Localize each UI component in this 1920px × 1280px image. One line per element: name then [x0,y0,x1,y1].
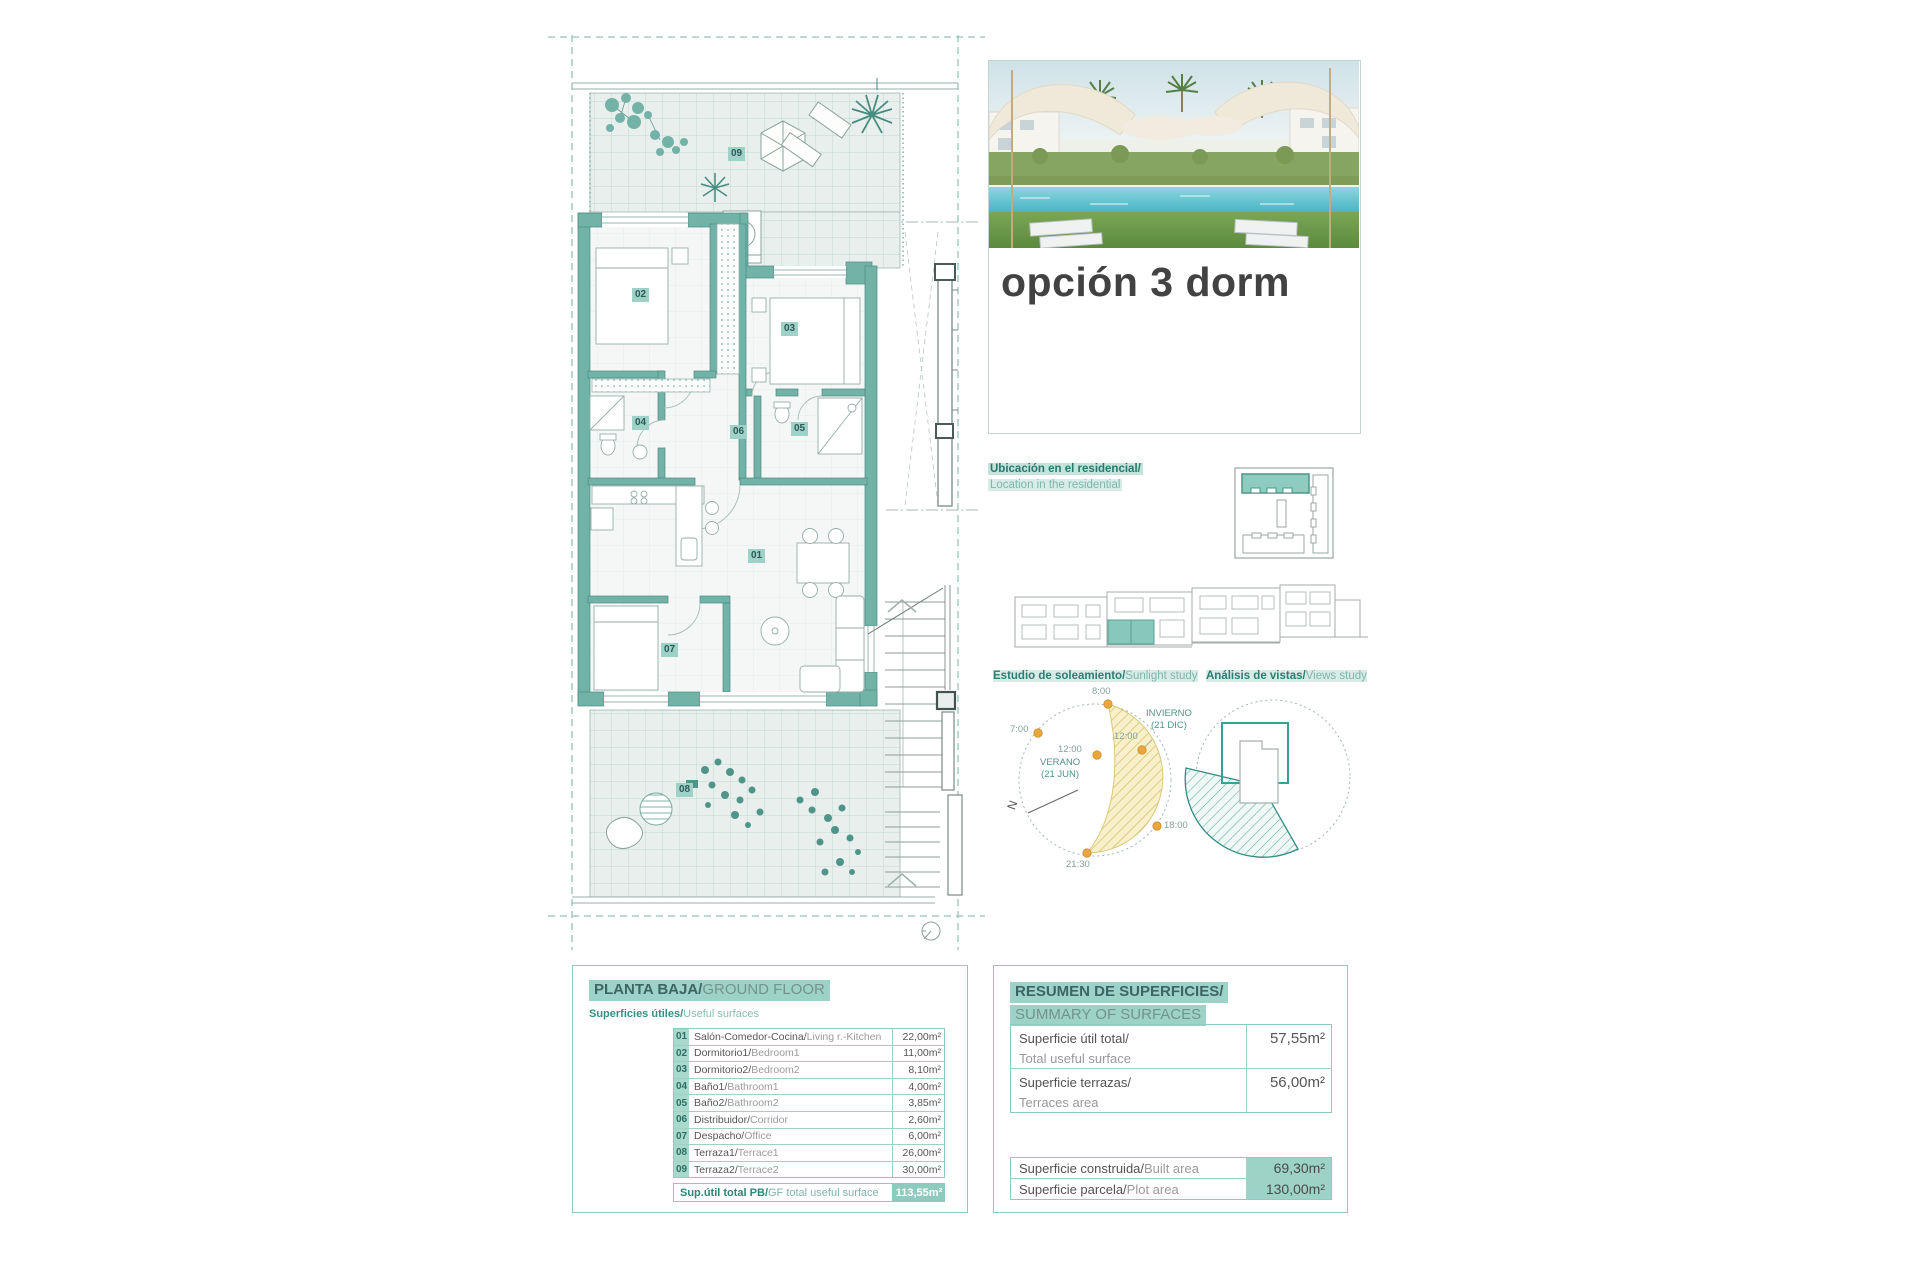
room-chip-04: 04 [632,416,649,430]
page-title: opción 3 dorm [1001,259,1290,306]
room-chip-09: 09 [728,147,745,161]
floor-plan-drawing [548,35,985,950]
row-name-en: Bathroom2 [727,1097,778,1109]
room-chip-06: 06 [730,425,747,439]
stair-wall-bottom [948,795,962,895]
row-name-es: Dormitorio1/ [694,1047,751,1059]
summary-title-en: SUMMARY OF SURFACES [1010,1005,1206,1026]
row-name-es: Despacho/ [694,1130,744,1142]
row-name-en: Living r.-Kitchen [807,1031,882,1043]
table-row: 08 Terraza1/Terrace1 26,00m² [674,1145,944,1162]
row-name-en: Bathroom1 [727,1081,778,1093]
top-wall-lines [572,83,958,89]
row-name: Terraza1/Terrace1 [689,1145,892,1161]
row-area: 11,00m² [892,1046,944,1062]
ground-floor-header: PLANTA BAJA/GROUND FLOOR [589,980,830,1001]
total-row: Sup.útil total PB/GF total useful surfac… [673,1183,945,1202]
views-building-outline [1240,741,1278,803]
sun-time-2130: 21:30 [1066,859,1090,870]
summary-row-label: Superficie parcela/Plot area [1011,1182,1246,1197]
table-row: 05 Baño2/Bathroom2 3,85m² [674,1095,944,1112]
summary-label-en: Plot area [1127,1182,1179,1197]
summary-label-es: Superficie parcela/ [1019,1182,1127,1197]
sun-time-1200-summer: 12:00 [1058,744,1082,755]
row-name-es: Terraza2/ [694,1164,738,1176]
views-study-label: Análisis de vistas/Views study [1206,670,1367,682]
row-number: 01 [674,1029,689,1045]
summary-row-value: 56,00m² [1246,1069,1331,1112]
row-name: Dormitorio1/Bedroom1 [689,1046,892,1062]
row-number: 04 [674,1079,689,1095]
sunlight-label-en: Sunlight study [1125,670,1197,682]
room-chip-01: 01 [748,549,765,563]
table-row: 03 Dormitorio2/Bedroom2 8,10m² [674,1062,944,1079]
row-name-en: Office [744,1130,771,1142]
table-row: Superficie parcela/Plot area 130,00m² [1011,1179,1331,1199]
row-area: 4,00m² [892,1079,944,1095]
row-number: 06 [674,1112,689,1128]
table-row: Superficie terrazas/ Terraces area 56,00… [1011,1069,1331,1112]
site-plan [1235,468,1333,558]
summary-table-bottom: Superficie construida/Built area 69,30m²… [1010,1157,1332,1200]
location-label-en: Location in the residential [988,479,1122,491]
summary-row-label: Superficie construida/Built area [1011,1161,1246,1176]
table-row: 04 Baño1/Bathroom1 4,00m² [674,1079,944,1096]
table-row: 06 Distribuidor/Corridor 2,60m² [674,1112,944,1129]
row-number: 07 [674,1129,689,1145]
table-row: 02 Dormitorio1/Bedroom1 11,00m² [674,1046,944,1063]
gf-title-es: PLANTA BAJA/ [594,981,702,998]
sunlight-label-es: Estudio de soleamiento/ [993,670,1125,682]
gf-subtitle-es: Superficies útiles/ [589,1008,683,1020]
summary-row-value: 57,55m² [1246,1025,1331,1068]
views-diagram [1185,700,1350,857]
winter-label-line1: INVIERNO [1146,708,1192,720]
gf-subtitle: Superficies útiles/Useful surfaces [589,1008,759,1020]
total-label-es: Sup.útil total PB/ [680,1187,768,1199]
summary-row-value: 130,00m² [1246,1179,1331,1199]
row-name-es: Terraza1/ [694,1147,738,1159]
row-name-en: Terrace1 [738,1147,779,1159]
row-name: Baño2/Bathroom2 [689,1095,892,1111]
round-table-bottom [640,793,672,825]
row-number: 05 [674,1095,689,1111]
row-name: Distribuidor/Corridor [689,1112,892,1128]
table-row: 01 Salón-Comedor-Cocina/Living r.-Kitche… [674,1029,944,1046]
table-row: Superficie útil total/ Total useful surf… [1011,1025,1331,1069]
brochure-page: { "hero": { "title": "opción 3 dorm" }, … [0,0,1920,1280]
summary-label-en: Total useful surface [1019,1051,1131,1066]
summary-header: RESUMEN DE SUPERFICIES/ SUMMARY OF SURFA… [1010,982,1228,1028]
summary-row-label: Superficie útil total/ Total useful surf… [1011,1025,1246,1068]
row-name: Salón-Comedor-Cocina/Living r.-Kitchen [689,1029,892,1045]
row-area: 22,00m² [892,1029,944,1045]
neighbour-walls [935,264,958,506]
north-arrow [1028,790,1078,813]
summer-label-line1: VERANO [1040,757,1080,769]
row-area: 26,00m² [892,1145,944,1161]
views-label-es: Análisis de vistas/ [1206,670,1306,682]
row-number: 03 [674,1062,689,1078]
terrace-bottom [572,710,935,903]
room-chip-03: 03 [781,322,798,336]
gf-subtitle-en: Useful surfaces [683,1008,759,1020]
sunlight-study-label: Estudio de soleamiento/Sunlight study [993,670,1198,682]
row-name-en: Terrace2 [738,1164,779,1176]
summary-label-es: Superficie terrazas/ [1019,1075,1131,1090]
row-area: 30,00m² [892,1162,944,1178]
total-label-en: GF total useful surface [768,1187,879,1199]
row-name-es: Distribuidor/ [694,1114,750,1126]
wardrobe-strip [717,224,739,374]
sun-time-1200-winter: 12:00 [1114,731,1138,742]
summer-label-line2: (21 JUN) [1040,769,1080,781]
summary-label-es: Superficie útil total/ [1019,1031,1129,1046]
row-name-en: Bedroom1 [751,1047,799,1059]
row-area: 6,00m² [892,1129,944,1145]
winter-label: INVIERNO (21 DIC) [1146,708,1192,733]
stair-wall-lower [942,712,954,790]
building-elevation [1015,585,1368,647]
diagonal-guides [905,232,938,505]
summary-row-label: Superficie terrazas/ Terraces area [1011,1069,1246,1112]
sun-time-1800: 18:00 [1164,820,1188,831]
row-name-es: Salón-Comedor-Cocina/ [694,1031,807,1043]
table-row: 07 Despacho/Office 6,00m² [674,1129,944,1146]
room-chip-07: 07 [661,643,678,657]
location-label-es: Ubicación en el residencial/ [988,463,1143,475]
row-name: Dormitorio2/Bedroom2 [689,1062,892,1078]
row-area: 3,85m² [892,1095,944,1111]
wardrobe-bedroom1 [592,379,710,392]
row-area: 8,10m² [892,1062,944,1078]
summer-label: VERANO (21 JUN) [1040,757,1080,782]
table-row: Superficie construida/Built area 69,30m² [1011,1158,1331,1179]
summary-label-es: Superficie construida/ [1019,1161,1144,1176]
row-area: 2,60m² [892,1112,944,1128]
room-chip-08: 08 [676,783,693,797]
summary-row-value: 69,30m² [1246,1158,1331,1178]
views-label-en: Views study [1306,670,1367,682]
summary-table-top: Superficie útil total/ Total useful surf… [1010,1024,1332,1113]
row-name: Baño1/Bathroom1 [689,1079,892,1095]
stair-pillar [937,692,955,709]
ground-floor-card: PLANTA BAJA/GROUND FLOOR Superficies úti… [572,965,968,1213]
row-number: 08 [674,1145,689,1161]
row-name-es: Baño2/ [694,1097,727,1109]
row-name-es: Baño1/ [694,1081,727,1093]
table-row: 09 Terraza2/Terrace2 30,00m² [674,1162,944,1178]
hero-card: opción 3 dorm [988,60,1361,434]
row-name-en: Corridor [750,1114,788,1126]
row-name: Terraza2/Terrace2 [689,1162,892,1178]
winter-label-line2: (21 DIC) [1146,720,1192,732]
summary-title-es: RESUMEN DE SUPERFICIES/ [1010,982,1228,1003]
sun-time-0800: 8:00 [1092,686,1111,697]
gf-title-en: GROUND FLOOR [702,981,825,998]
row-name: Despacho/Office [689,1129,892,1145]
total-value: 113,55m² [893,1183,945,1202]
summary-label-en: Terraces area [1019,1095,1098,1110]
summary-card: RESUMEN DE SUPERFICIES/ SUMMARY OF SURFA… [993,965,1348,1213]
row-name-en: Bedroom2 [751,1064,799,1076]
room-chip-05: 05 [791,422,808,436]
surfaces-table: 01 Salón-Comedor-Cocina/Living r.-Kitche… [673,1028,945,1178]
row-number: 02 [674,1046,689,1062]
total-label: Sup.útil total PB/GF total useful surfac… [673,1183,893,1202]
room-chip-02: 02 [632,288,649,302]
location-label: Ubicación en el residencial/ Location in… [988,461,1143,493]
sun-time-0700: 7:00 [1010,724,1029,735]
row-name-es: Dormitorio2/ [694,1064,751,1076]
compass-icon [922,922,940,940]
row-number: 09 [674,1162,689,1178]
summary-label-en: Built area [1144,1161,1199,1176]
